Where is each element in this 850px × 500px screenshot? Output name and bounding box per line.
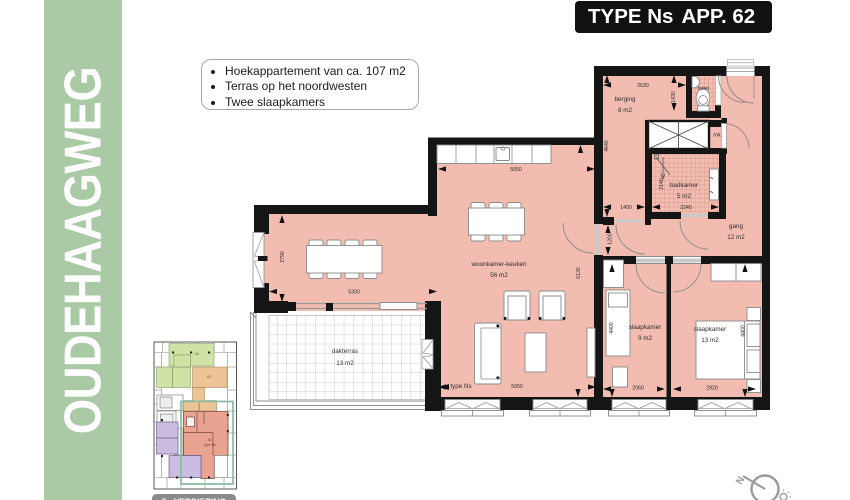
svg-text:1400: 1400 — [620, 205, 632, 211]
svg-text:64: 64 — [195, 352, 199, 356]
svg-text:OUDEHAAGWEG: OUDEHAAGWEG — [55, 67, 113, 434]
svg-text:dakterras: dakterras — [332, 348, 358, 355]
svg-text:4640: 4640 — [604, 140, 610, 152]
svg-text:13 m2: 13 m2 — [336, 360, 354, 367]
svg-text:toilet: toilet — [698, 86, 710, 92]
svg-text:1430: 1430 — [671, 91, 677, 103]
svg-text:woonkamer-keuken: woonkamer-keuken — [471, 261, 527, 268]
svg-text:1200: 1200 — [608, 233, 614, 245]
svg-text:5050: 5050 — [510, 167, 522, 173]
svg-text:62: 62 — [208, 438, 212, 442]
svg-text:2920: 2920 — [706, 386, 718, 392]
svg-text:gang: gang — [729, 223, 744, 230]
svg-text:berging: berging — [614, 96, 636, 103]
svg-text:slaapkamer: slaapkamer — [629, 324, 662, 331]
svg-text:type Ns: type Ns — [450, 383, 471, 390]
svg-text:4400: 4400 — [609, 322, 615, 334]
svg-text:9 m2: 9 m2 — [638, 335, 652, 342]
svg-text:13 m2: 13 m2 — [701, 337, 719, 344]
svg-text:63: 63 — [207, 375, 211, 379]
svg-text:2240: 2240 — [680, 205, 692, 211]
svg-text:5 m2: 5 m2 — [677, 193, 691, 200]
svg-text:mk: mk — [713, 133, 721, 139]
svg-text:2140: 2140 — [659, 178, 665, 190]
svg-text:badkamer: badkamer — [670, 182, 698, 189]
svg-text:2630: 2630 — [637, 83, 649, 89]
svg-text:5300: 5300 — [348, 290, 360, 296]
svg-text:6130: 6130 — [576, 267, 582, 279]
svg-text:2060: 2060 — [632, 386, 644, 392]
svg-text:5050: 5050 — [511, 384, 523, 390]
svg-text:5e VERDIEPING: 5e VERDIEPING — [162, 497, 227, 500]
svg-text:8 m2: 8 m2 — [618, 107, 632, 114]
svg-text:2790: 2790 — [280, 251, 286, 263]
svg-text:56 m2: 56 m2 — [490, 272, 508, 279]
svg-text:12 m2: 12 m2 — [727, 234, 745, 241]
svg-text:type Ns: type Ns — [204, 443, 216, 447]
svg-text:slaapkamer: slaapkamer — [694, 326, 727, 333]
svg-text:4400: 4400 — [741, 325, 747, 337]
